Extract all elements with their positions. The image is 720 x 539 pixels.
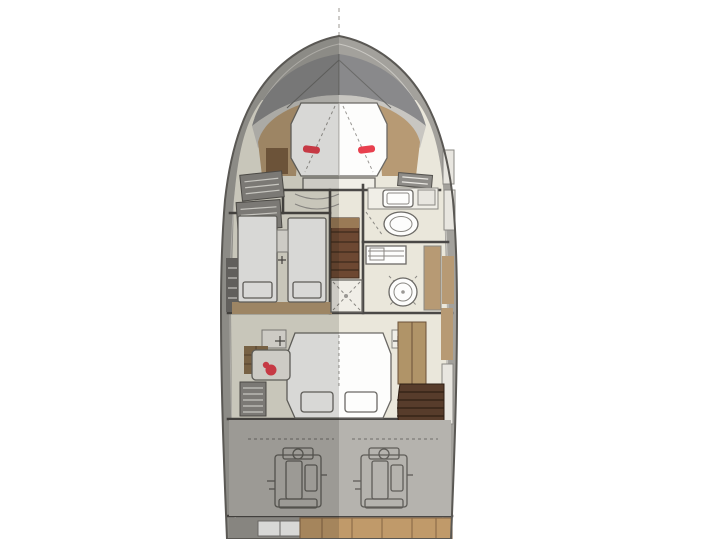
mid-head-wood-column — [424, 246, 441, 310]
fwd-head-toilet — [384, 212, 418, 236]
master-pillow-2 — [345, 392, 377, 412]
yacht-deck-plan — [0, 0, 720, 539]
shower-drain — [344, 294, 348, 298]
fwd-head-shelf — [418, 190, 435, 205]
mid-head-vanity — [366, 246, 406, 264]
